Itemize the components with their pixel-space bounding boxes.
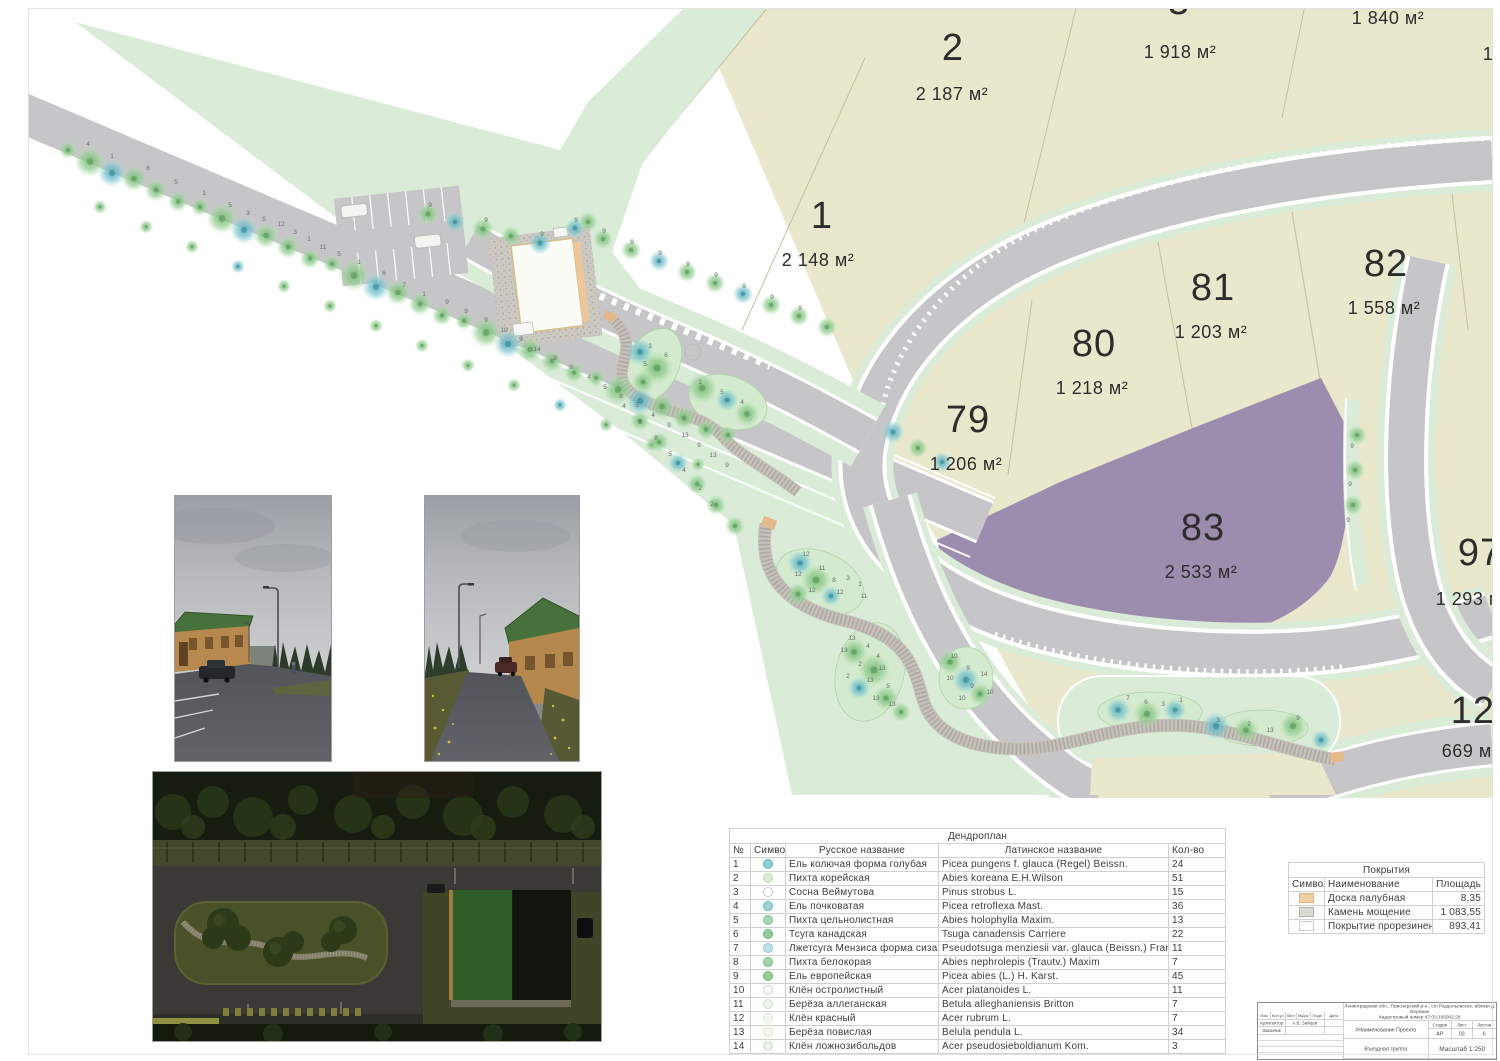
- svg-text:6: 6: [382, 270, 386, 277]
- svg-text:14: 14: [980, 671, 988, 678]
- svg-text:1: 1: [202, 190, 206, 197]
- svg-text:3: 3: [846, 575, 850, 582]
- parcel-81-area: 1 203 м²: [1175, 322, 1247, 342]
- svg-text:9: 9: [725, 462, 729, 469]
- svg-text:7: 7: [1126, 695, 1130, 702]
- architect-name: А.В. Зайцев: [1285, 1020, 1324, 1028]
- parcel-80-number: 80: [1072, 323, 1116, 365]
- car-dark: [427, 884, 445, 893]
- svg-text:2: 2: [698, 485, 702, 492]
- svg-text:9: 9: [658, 250, 662, 257]
- table-row: 14Клён ложнозибольдовAcer pseudosieboldi…: [730, 1040, 1226, 1054]
- svg-text:5: 5: [635, 402, 639, 409]
- fence-band: [153, 840, 601, 866]
- svg-text:9: 9: [667, 422, 671, 429]
- svg-text:4: 4: [876, 653, 880, 660]
- table-row: 4Ель почковатаяPicea retroflexa Mast.36: [730, 900, 1226, 914]
- svg-text:9: 9: [519, 336, 523, 343]
- svg-text:10: 10: [500, 327, 508, 334]
- svg-text:13: 13: [878, 665, 886, 672]
- svg-text:13: 13: [866, 677, 874, 684]
- svg-text:9: 9: [484, 217, 488, 224]
- svg-text:9: 9: [1346, 517, 1350, 524]
- table-row: Доска палубная8,35: [1289, 892, 1485, 906]
- svg-text:13: 13: [848, 635, 856, 642]
- svg-text:9: 9: [445, 299, 449, 306]
- table-row: 9Ель европейскаяPicea abies (L.) H. Kars…: [730, 970, 1226, 984]
- svg-text:12: 12: [808, 587, 816, 594]
- svg-text:5: 5: [668, 451, 672, 458]
- coverings-title: Покрытия: [1289, 863, 1485, 878]
- svg-text:11: 11: [861, 593, 868, 600]
- sheet-value: 03: [1451, 1029, 1472, 1039]
- dendroplan-title: Дендроплан: [730, 829, 1226, 844]
- svg-text:14: 14: [533, 346, 541, 353]
- svg-text:3: 3: [293, 229, 297, 236]
- svg-text:13: 13: [872, 695, 880, 702]
- svg-text:3: 3: [1161, 701, 1165, 708]
- svg-text:9: 9: [484, 317, 488, 324]
- table-row: 5Пихта цельнолистнаяAbies holophylla Max…: [730, 914, 1226, 928]
- svg-text:6: 6: [664, 352, 668, 359]
- landscape-island: [175, 902, 387, 984]
- svg-text:9: 9: [714, 272, 718, 279]
- svg-text:1: 1: [1179, 697, 1183, 704]
- svg-text:1: 1: [858, 581, 862, 588]
- parcel-79-area: 1 206 м²: [930, 454, 1002, 474]
- table-row: 1Ель колючая форма голубаяPicea pungens …: [730, 858, 1226, 872]
- stage-value: АР: [1428, 1029, 1451, 1039]
- svg-text:1: 1: [307, 236, 311, 243]
- svg-text:2: 2: [710, 501, 714, 508]
- street-photo-1: [174, 495, 332, 762]
- sheets-value: 6: [1472, 1029, 1496, 1039]
- svg-text:9: 9: [553, 355, 557, 362]
- parcel-topright-area: 1 840 м²: [1352, 8, 1424, 28]
- svg-text:9: 9: [798, 305, 802, 312]
- parcel-3-area: 1 918 м²: [1144, 42, 1216, 62]
- table-row: 12Клён красныйAcer rubrum L.7: [730, 1012, 1226, 1026]
- coverings-rows: Доска палубная8,35Камень мощение1 083,55…: [1289, 892, 1485, 934]
- svg-text:9: 9: [770, 294, 774, 301]
- svg-text:10: 10: [950, 653, 958, 660]
- svg-text:4: 4: [86, 141, 90, 148]
- address-line1: Ленинградская обл., Приозерский р-н., с/…: [1344, 1004, 1497, 1015]
- parcel-2-number: 2: [942, 27, 964, 69]
- table-row: 13Берёза повислаяBelula pendula L.34: [730, 1026, 1226, 1040]
- sheet-label: Лист: [1451, 1021, 1472, 1029]
- svg-text:4: 4: [622, 403, 626, 410]
- project-name: #Наименование Проекта: [1343, 1021, 1428, 1039]
- svg-text:3: 3: [1216, 717, 1220, 724]
- table-row: 2Пихта корейскаяAbies koreana E.H.Wilson…: [730, 872, 1226, 886]
- svg-text:1: 1: [357, 259, 361, 266]
- table-row: 11Берёза аллеганскаяBetula alleghaniensi…: [730, 998, 1226, 1012]
- parcel-120-number: 120: [1451, 690, 1500, 732]
- svg-text:13: 13: [1266, 727, 1274, 734]
- scale-value: Масштаб 1:250: [1428, 1039, 1496, 1059]
- svg-text:1: 1: [698, 379, 702, 386]
- svg-text:8: 8: [619, 393, 623, 400]
- parcel-1-number: 1: [811, 195, 833, 237]
- svg-text:9: 9: [630, 239, 634, 246]
- svg-text:9: 9: [1296, 715, 1300, 722]
- parcel-1-area: 2 148 м²: [782, 250, 854, 270]
- svg-text:5: 5: [337, 251, 341, 258]
- parcel-82-number: 82: [1364, 243, 1408, 285]
- dendroplan-rows: 1Ель колючая форма голубаяPicea pungens …: [730, 858, 1226, 1054]
- edge-fragment: 1: [1483, 44, 1494, 64]
- svg-text:13: 13: [681, 432, 689, 439]
- svg-text:5: 5: [262, 216, 266, 223]
- coverings-table: Покрытия Символ Наименование Площадь Дос…: [1288, 862, 1485, 934]
- building: [449, 890, 571, 1007]
- svg-text:9: 9: [1350, 443, 1354, 450]
- svg-text:9: 9: [970, 683, 974, 690]
- dendroplan-table: Дендроплан № Символ Русское название Лат…: [729, 828, 1226, 1054]
- drawing-title: Въездная группа: [1343, 1039, 1428, 1059]
- title-block: Изм Кол.уч Лист №Док Подп Дата Архитекто…: [1257, 1002, 1497, 1060]
- road: [153, 866, 601, 892]
- col-ndok: №Док: [1296, 1012, 1310, 1020]
- svg-text:1: 1: [422, 291, 426, 298]
- dendroplan-header: № Символ Русское название Латинское назв…: [730, 844, 1226, 858]
- svg-text:2: 2: [1247, 721, 1251, 728]
- svg-text:4: 4: [866, 643, 870, 650]
- svg-text:9: 9: [742, 283, 746, 290]
- parcel-83-area: 2 533 м²: [1165, 562, 1237, 582]
- parcel-81-number: 81: [1191, 267, 1235, 309]
- svg-text:4: 4: [682, 467, 686, 474]
- svg-text:13: 13: [709, 452, 717, 459]
- svg-text:11: 11: [320, 244, 327, 251]
- table-row: Покрытие прорезиненное893,41: [1289, 920, 1485, 934]
- svg-text:3: 3: [648, 343, 652, 350]
- table-row: 8Пихта белокораяAbies nephrolepis (Traut…: [730, 956, 1226, 970]
- svg-text:12: 12: [802, 551, 810, 558]
- svg-text:5: 5: [174, 179, 178, 186]
- svg-text:9: 9: [464, 308, 468, 315]
- svg-text:12: 12: [277, 221, 285, 228]
- col-podp: Подп: [1310, 1012, 1324, 1020]
- svg-text:10: 10: [958, 695, 966, 702]
- svg-text:2: 2: [846, 673, 850, 680]
- client-role: Заказчик: [1258, 1027, 1285, 1035]
- svg-text:10: 10: [986, 689, 994, 696]
- parcel-83-number: 83: [1181, 507, 1225, 549]
- col-list: Лист: [1285, 1012, 1296, 1020]
- svg-text:5: 5: [643, 361, 647, 368]
- svg-text:4: 4: [587, 374, 591, 381]
- parcel-97-number: 97: [1458, 532, 1500, 574]
- svg-text:8: 8: [654, 435, 658, 442]
- svg-text:6: 6: [146, 165, 150, 172]
- svg-text:12: 12: [794, 571, 802, 578]
- architect-role: Архитектор: [1258, 1020, 1285, 1028]
- parcel-82-area: 1 558 м²: [1348, 298, 1420, 318]
- table-row: 3Сосна ВеймутоваPinus strobus L.15: [730, 886, 1226, 900]
- svg-text:2: 2: [858, 661, 862, 668]
- col-koluch: Кол.уч: [1270, 1012, 1285, 1020]
- col-izm: Изм: [1258, 1012, 1270, 1020]
- table-row: Камень мощение1 083,55: [1289, 906, 1485, 920]
- drawing-sheet: 4165153512311151671999109149945854913913…: [0, 0, 1500, 1061]
- svg-text:13: 13: [888, 701, 896, 708]
- table-row: 7Лжетсуга Мензиса форма сизаяPseudotsuga…: [730, 942, 1226, 956]
- aerial-render: [152, 771, 602, 1042]
- svg-text:9: 9: [574, 217, 578, 224]
- pedestrian: [292, 662, 296, 674]
- svg-text:5: 5: [886, 683, 890, 690]
- parcel-79-number: 79: [946, 399, 990, 441]
- svg-text:7: 7: [402, 282, 406, 289]
- street-photo-2: [424, 495, 580, 762]
- stage-label: Стадия: [1428, 1021, 1451, 1029]
- svg-text:9: 9: [428, 202, 432, 209]
- table-row: 10Клён остролистныйAcer platanoides L.11: [730, 984, 1226, 998]
- parcel-3-number: 3: [1168, 0, 1190, 23]
- svg-text:9: 9: [966, 665, 970, 672]
- svg-text:6: 6: [1144, 699, 1148, 706]
- svg-text:5: 5: [720, 389, 724, 396]
- coverings-header: Символ Наименование Площадь: [1289, 878, 1485, 892]
- parcel-2-area: 2 187 м²: [916, 84, 988, 104]
- svg-text:10: 10: [946, 675, 954, 682]
- svg-text:3: 3: [246, 210, 250, 217]
- sheets-label: Листов: [1472, 1021, 1496, 1029]
- svg-text:9: 9: [569, 364, 573, 371]
- parcel-97-area: 1 293 м²: [1436, 589, 1500, 609]
- svg-text:12: 12: [836, 589, 844, 596]
- svg-text:9: 9: [540, 231, 544, 238]
- svg-text:8: 8: [832, 577, 836, 584]
- address-line2: Кадастровый номер 47:03:105002:29: [1379, 1015, 1460, 1021]
- svg-text:5: 5: [228, 202, 232, 209]
- svg-text:9: 9: [686, 261, 690, 268]
- svg-text:9: 9: [602, 228, 606, 235]
- svg-text:9: 9: [697, 442, 701, 449]
- col-data: Дата: [1324, 1012, 1343, 1020]
- svg-text:5: 5: [603, 384, 607, 391]
- svg-text:13: 13: [840, 647, 848, 654]
- svg-text:5: 5: [638, 419, 642, 426]
- address-block: Ленинградская обл., Приозерский р-н., с/…: [1343, 1003, 1496, 1021]
- table-row: 6Тсуга канадскаяTsuga canadensis Carrier…: [730, 928, 1226, 942]
- svg-text:9: 9: [1348, 481, 1352, 488]
- parcel-80-area: 1 218 м²: [1056, 378, 1128, 398]
- parcel-120-area: 669 м²: [1442, 741, 1498, 761]
- svg-text:4: 4: [740, 399, 744, 406]
- svg-text:11: 11: [819, 565, 826, 572]
- svg-text:4: 4: [651, 412, 655, 419]
- svg-text:1: 1: [110, 153, 114, 160]
